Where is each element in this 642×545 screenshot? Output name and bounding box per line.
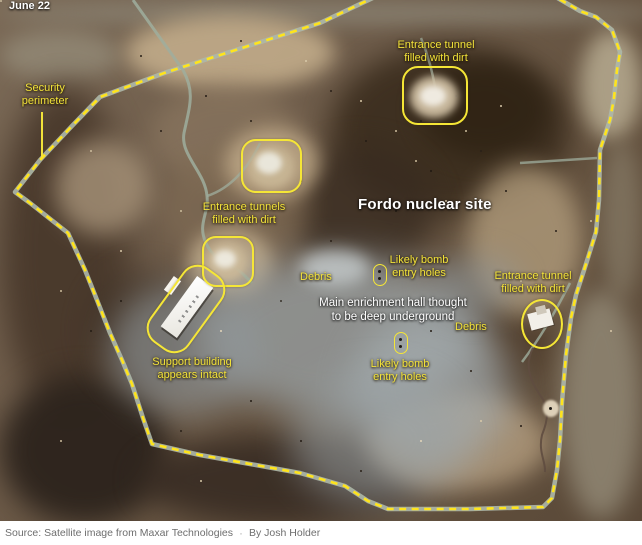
- label-enrichment-hall: Main enrichment hall thought to be deep …: [319, 296, 467, 324]
- security-perimeter-line: [15, 0, 620, 509]
- label-line: entry holes: [390, 267, 449, 280]
- label-line: Entrance tunnels: [203, 201, 286, 214]
- label-line: Likely bomb: [390, 254, 449, 267]
- label-line: appears intact: [152, 369, 232, 382]
- label-tunnel-right: Entrance tunnel filled with dirt: [494, 270, 571, 295]
- perimeter-road: [15, 0, 620, 509]
- annotation-box-tunnels-upper: [241, 139, 302, 193]
- bomb-hole-dot: [378, 277, 381, 280]
- annotation-pill-bomb-holes-upper: [373, 264, 387, 286]
- label-line: entry holes: [371, 371, 430, 384]
- bomb-hole-dot: [399, 345, 402, 348]
- label-tunnels-mid: Entrance tunnels filled with dirt: [203, 201, 286, 226]
- label-line: Likely bomb: [371, 358, 430, 371]
- source-line: Source: Satellite image from Maxar Techn…: [0, 521, 642, 545]
- byline-text: By Josh Holder: [249, 527, 320, 539]
- date-label: June 22: [9, 0, 50, 13]
- road: [520, 158, 597, 163]
- site-title: Fordo nuclear site: [358, 199, 492, 212]
- satellite-map: June 22 Security perimeter Entrance tunn…: [0, 0, 642, 521]
- security-perimeter-leader-line: [41, 112, 43, 157]
- label-debris-left: Debris: [300, 271, 332, 284]
- annotation-box-tunnel-top: [402, 66, 468, 125]
- label-line: Entrance tunnel: [397, 39, 474, 52]
- label-line: filled with dirt: [397, 52, 474, 65]
- label-support-building: Support building appears intact: [152, 356, 232, 381]
- label-line: filled with dirt: [494, 283, 571, 296]
- label-line: filled with dirt: [203, 214, 286, 227]
- separator-dot: ·: [239, 526, 243, 540]
- label-debris-right: Debris: [455, 321, 487, 334]
- label-line: Entrance tunnel: [494, 270, 571, 283]
- label-bomb-holes-lower: Likely bomb entry holes: [371, 358, 430, 383]
- label-line: Main enrichment hall thought: [319, 296, 467, 310]
- label-security-perimeter: Security perimeter: [22, 82, 68, 107]
- bomb-hole-dot: [399, 338, 402, 341]
- roads-layer: [0, 0, 642, 521]
- label-line: perimeter: [22, 95, 68, 108]
- label-line: Security: [22, 82, 68, 95]
- label-bomb-holes-upper: Likely bomb entry holes: [390, 254, 449, 279]
- source-text: Source: Satellite image from Maxar Techn…: [5, 527, 233, 539]
- label-line: to be deep underground: [319, 310, 467, 324]
- news-graphic: June 22 Security perimeter Entrance tunn…: [0, 0, 642, 545]
- annotation-ellipse-tunnel-right: [521, 299, 563, 349]
- annotation-pill-bomb-holes-lower: [394, 332, 408, 354]
- label-line: Support building: [152, 356, 232, 369]
- bomb-hole-dot: [378, 270, 381, 273]
- terrain-detail: [549, 407, 552, 410]
- label-tunnel-top: Entrance tunnel filled with dirt: [397, 39, 474, 64]
